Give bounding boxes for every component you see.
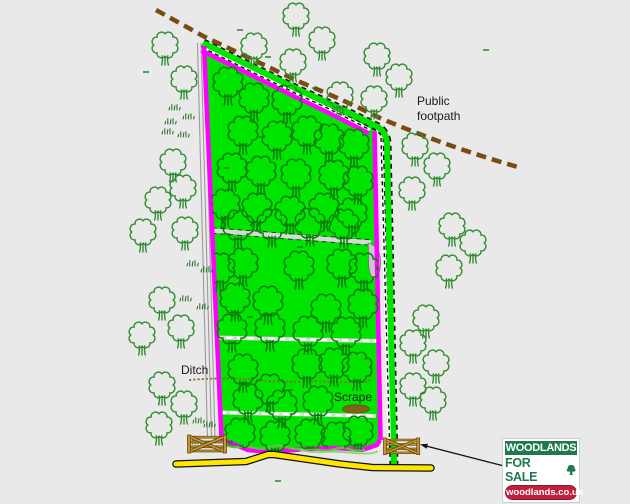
scrape-pond bbox=[343, 405, 370, 413]
public-footpath-label: Public footpath bbox=[417, 94, 477, 124]
logo-woodlands-banner: WOODLANDS bbox=[505, 441, 577, 455]
logo-for-sale-row: FOR SALE bbox=[505, 455, 577, 485]
logo-for-sale-text: FOR SALE bbox=[505, 456, 563, 484]
logo-tree-icon bbox=[565, 464, 577, 477]
map-canvas bbox=[0, 0, 630, 504]
scrape-label: Scrape bbox=[334, 390, 384, 405]
woodlands-for-sale-logo: WOODLANDS FOR SALE woodlands.co.uk bbox=[502, 438, 580, 503]
ditch-label: Ditch bbox=[181, 363, 223, 378]
logo-url-pill: woodlands.co.uk bbox=[505, 485, 577, 500]
woodland-sale-map: Public footpath Ditch Scrape WOODLANDS F… bbox=[0, 0, 630, 504]
